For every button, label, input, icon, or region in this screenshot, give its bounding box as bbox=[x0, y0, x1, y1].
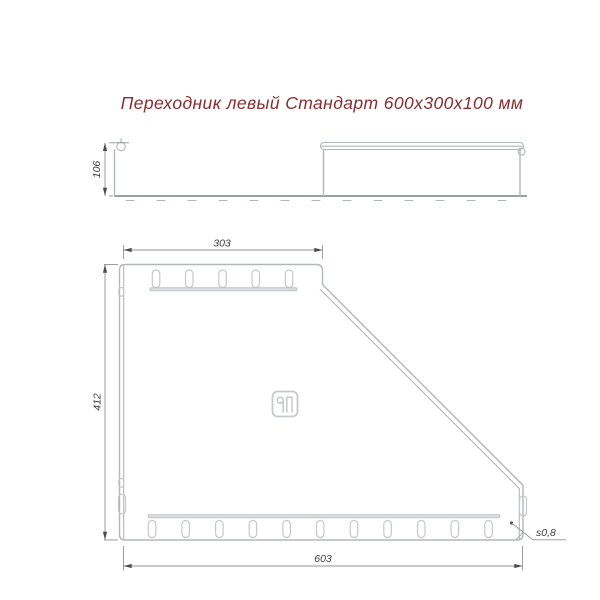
dim-label-bottom-width: 603 bbox=[314, 553, 332, 565]
dimension-412: 412 bbox=[92, 265, 119, 541]
side-view: 106 bbox=[91, 139, 527, 201]
brand-logo-icon bbox=[273, 392, 298, 417]
plan-diagonal-fold-line bbox=[320, 290, 519, 489]
dim-label-height: 106 bbox=[91, 161, 103, 179]
dimension-303: 303 bbox=[124, 238, 323, 260]
dim-label-top-width: 303 bbox=[213, 238, 231, 250]
dimension-106: 106 bbox=[91, 143, 129, 196]
stiffening-rib-top bbox=[150, 288, 297, 291]
dim-label-thickness: s0,8 bbox=[536, 527, 556, 539]
plan-outline bbox=[120, 265, 524, 541]
perforation-slots-bottom bbox=[148, 521, 492, 538]
dimension-603: 603 bbox=[124, 546, 523, 571]
plan-view: 303 412 603 bbox=[92, 238, 567, 571]
side-left-rolled-edge bbox=[117, 142, 125, 150]
stiffening-rib-bottom bbox=[148, 515, 500, 518]
perforation-slots-top bbox=[152, 270, 292, 288]
drawing-canvas: Переходник левый Стандарт 600х300х100 мм bbox=[0, 0, 600, 600]
dim-label-length: 412 bbox=[92, 393, 104, 411]
technical-drawing: 106 bbox=[0, 0, 600, 600]
